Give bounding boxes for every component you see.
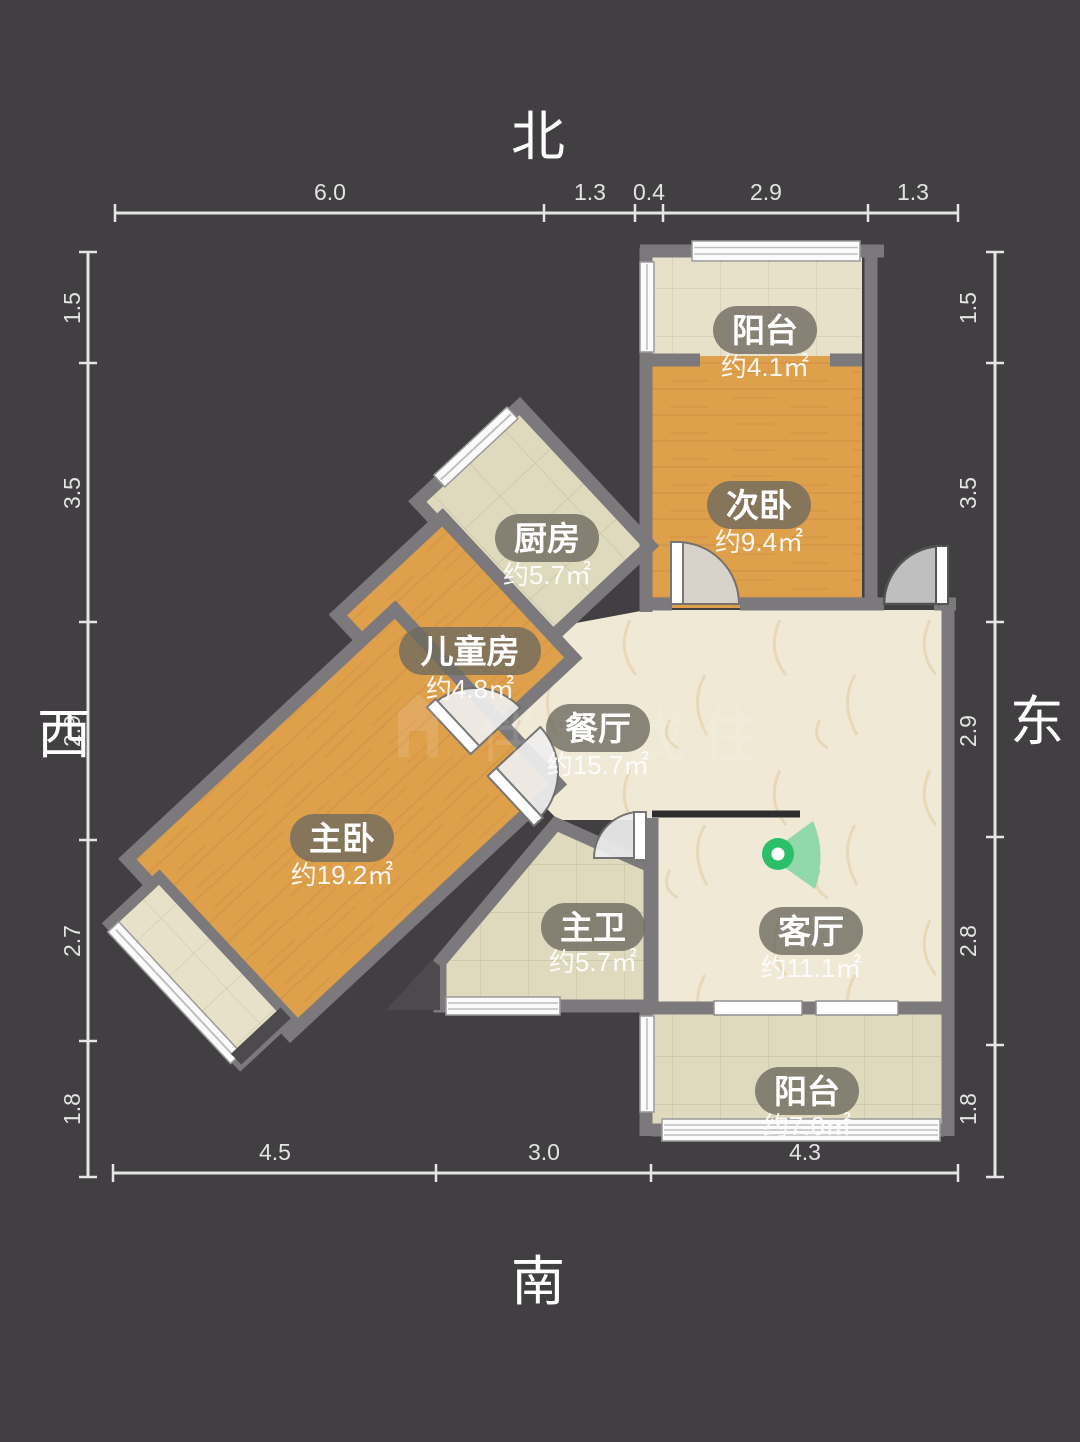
room-name: 次卧 bbox=[726, 487, 792, 524]
dim-label: 3.0 bbox=[528, 1139, 560, 1165]
room-label-balcony-north: 阳台 约4.1㎡ bbox=[713, 306, 817, 382]
room-name: 客厅 bbox=[778, 913, 844, 950]
compass-south: 南 bbox=[511, 1252, 565, 1312]
room-name: 厨房 bbox=[514, 520, 580, 557]
dim-label: 1.8 bbox=[955, 1093, 981, 1125]
room-area: 约19.2㎡ bbox=[291, 860, 394, 890]
room-label-balcony-south: 阳台 约7.0㎡ bbox=[755, 1067, 859, 1141]
room-name: 餐厅 bbox=[565, 710, 631, 747]
room-name: 主卫 bbox=[560, 909, 626, 946]
room-label-dining: 餐厅 约15.7㎡ bbox=[546, 704, 650, 780]
dim-label: 1.5 bbox=[59, 292, 85, 324]
dim-label: 1.8 bbox=[59, 1093, 85, 1125]
room-area: 约5.7㎡ bbox=[503, 560, 591, 590]
dim-label: 0.4 bbox=[633, 179, 665, 205]
room-area: 约4.8㎡ bbox=[426, 674, 514, 704]
compass-east: 东 bbox=[1010, 692, 1064, 752]
room-label-living: 客厅 约11.1㎡ bbox=[759, 907, 863, 983]
dim-label: 1.3 bbox=[574, 179, 606, 205]
door-leaf-entry bbox=[936, 546, 948, 604]
room-area: 约7.0㎡ bbox=[763, 1111, 851, 1141]
dim-label: 4.5 bbox=[259, 1139, 291, 1165]
camera-dot-inner bbox=[772, 848, 785, 861]
room-name: 阳台 bbox=[774, 1073, 840, 1110]
opening-living-balcony-1 bbox=[714, 1001, 802, 1015]
opening-living-balcony-2 bbox=[816, 1001, 898, 1015]
room-label-secondary-bedroom: 次卧 约9.4㎡ bbox=[707, 481, 811, 557]
dim-label: 2.9 bbox=[955, 715, 981, 747]
room-name: 主卧 bbox=[309, 820, 375, 857]
room-area: 约11.1㎡ bbox=[761, 953, 862, 983]
compass-west: 西 bbox=[37, 705, 91, 765]
dim-label: 2.8 bbox=[955, 925, 981, 957]
dim-label: 1.3 bbox=[897, 179, 929, 205]
room-label-kitchen: 厨房 约5.7㎡ bbox=[495, 514, 599, 590]
window-bath bbox=[446, 997, 560, 1015]
dim-label: 2.9 bbox=[750, 179, 782, 205]
room-area: 约5.7㎡ bbox=[549, 947, 637, 977]
door-leaf-bath bbox=[634, 812, 646, 860]
room-label-master-bath: 主卫 约5.7㎡ bbox=[541, 903, 645, 977]
dim-label: 1.5 bbox=[955, 292, 981, 324]
door-leaf-secondary-bedroom bbox=[671, 542, 683, 604]
room-area: 约9.4㎡ bbox=[715, 527, 803, 557]
dim-label: 3.5 bbox=[59, 477, 85, 509]
compass-north: 北 bbox=[511, 107, 565, 167]
dim-label: 2.7 bbox=[59, 925, 85, 957]
dim-label: 4.3 bbox=[789, 1139, 821, 1165]
window-balcony-north-top bbox=[692, 241, 860, 261]
room-name: 阳台 bbox=[732, 312, 798, 349]
room-label-master-bedroom: 主卧 约19.2㎡ bbox=[290, 814, 394, 890]
dim-label: 6.0 bbox=[314, 179, 346, 205]
room-area: 约15.7㎡ bbox=[547, 750, 650, 780]
room-name: 儿童房 bbox=[421, 633, 520, 670]
dim-label: 3.5 bbox=[955, 477, 981, 509]
floorplan-canvas: 伴里找住 阳台 约4.1㎡ 次卧 约9.4㎡ 厨房 约5.7㎡ 儿童房 约4.8… bbox=[0, 0, 1080, 1442]
floorplan-page: 伴里找住 阳台 约4.1㎡ 次卧 约9.4㎡ 厨房 约5.7㎡ 儿童房 约4.8… bbox=[0, 0, 1080, 1442]
room-area: 约4.1㎡ bbox=[721, 352, 809, 382]
